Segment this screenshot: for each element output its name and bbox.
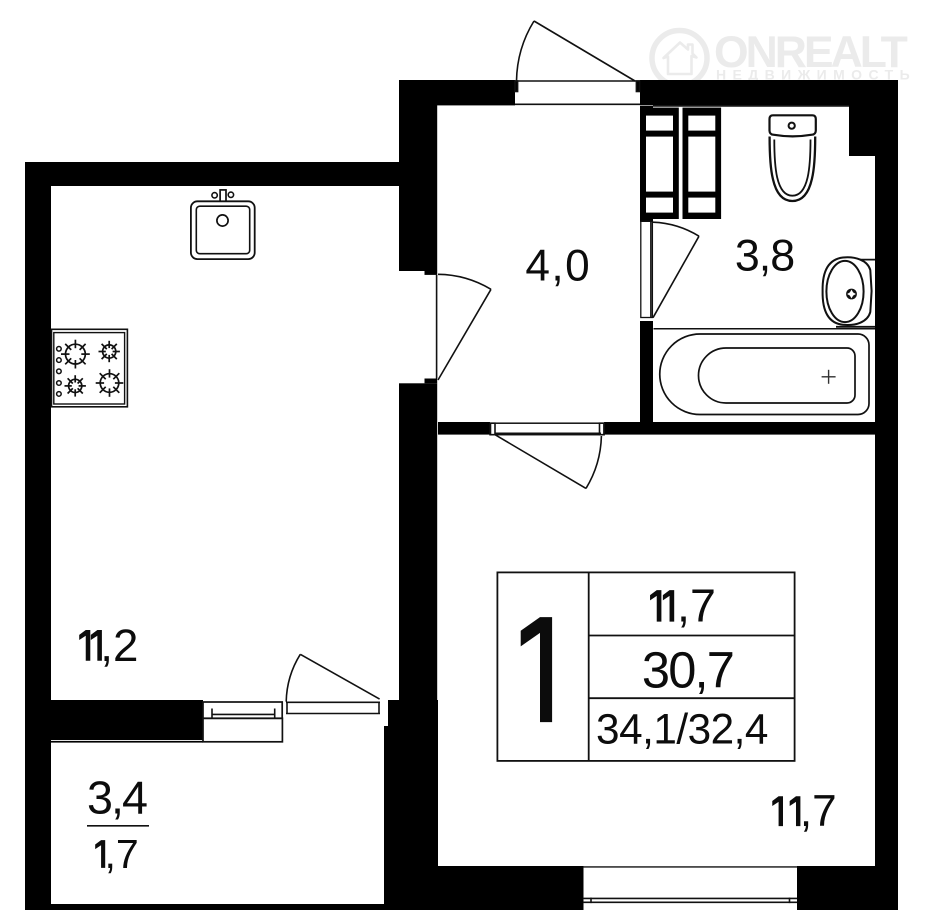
svg-text:,2: ,2 (100, 620, 138, 671)
svg-text:34,1/32,4: 34,1/32,4 (596, 706, 768, 753)
svg-text:,7: ,7 (800, 787, 837, 836)
svg-text:30,7: 30,7 (642, 642, 733, 699)
svg-text:3,4: 3,4 (87, 772, 147, 824)
svg-text:4,0: 4,0 (525, 241, 591, 290)
svg-text:,7: ,7 (105, 831, 139, 877)
svg-text:,7: ,7 (677, 580, 716, 632)
svg-text:3,8: 3,8 (735, 231, 794, 281)
